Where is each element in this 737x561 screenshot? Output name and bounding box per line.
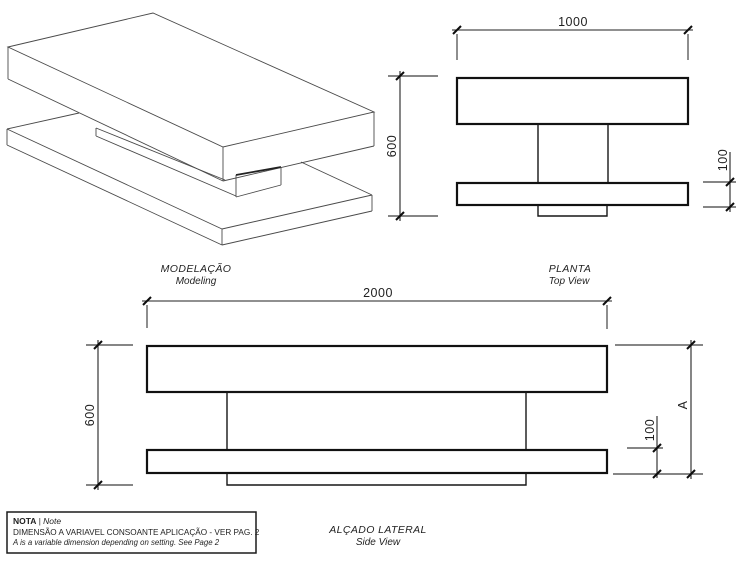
dimension-value-A: A — [676, 400, 690, 409]
top-view-top-slab — [457, 78, 688, 124]
dimension-value-600: 600 — [83, 404, 97, 426]
side-view-tab — [227, 473, 526, 485]
note-heading: NOTA | Note — [13, 516, 61, 526]
top-view-connector — [538, 124, 608, 183]
top-view-title-pt: PLANTA — [549, 263, 591, 275]
iso-top-slab-edge — [8, 79, 223, 181]
iso-connector-edge — [236, 185, 281, 197]
modeling-title-en: Modeling — [176, 276, 217, 287]
note-text-en: A is a variable dimension depending on s… — [12, 538, 220, 547]
side-view-connector — [227, 392, 526, 450]
dimension-value-1000: 1000 — [558, 15, 588, 29]
iso-bottom-slab-edge — [301, 162, 372, 195]
side-view-bottom-slab — [147, 450, 607, 473]
dimension-600-top-view: 600 — [385, 71, 438, 221]
side-view: 2000 600 A 100 ALÇADO — [83, 286, 703, 548]
top-view: 1000 600 100 PLANTA Top View — [385, 15, 736, 287]
dimension-600-side-view: 600 — [83, 340, 133, 490]
iso-top-slab-edge — [223, 146, 374, 181]
modeling-title-pt: MODELAÇÃO — [161, 262, 232, 275]
dimension-value-2000: 2000 — [363, 286, 393, 300]
dimension-1000: 1000 — [452, 15, 693, 60]
side-view-title-pt: ALÇADO LATERAL — [328, 524, 427, 536]
dimension-100-top-view: 100 — [703, 149, 736, 212]
iso-top-slab-top-face — [8, 13, 374, 147]
dimension-2000: 2000 — [142, 286, 612, 329]
dimension-value-100: 100 — [643, 419, 657, 441]
side-view-top-slab — [147, 346, 607, 392]
top-view-bottom-slab — [457, 183, 688, 205]
iso-bottom-slab-edge — [7, 113, 79, 129]
dimension-100-side-view: 100 — [627, 416, 663, 478]
dimension-value-100: 100 — [716, 149, 730, 171]
iso-connector-edge — [96, 128, 225, 180]
isometric-view: MODELAÇÃO Modeling — [7, 13, 374, 287]
iso-bottom-slab-edge — [222, 211, 372, 245]
iso-connector-top-edge — [236, 167, 281, 175]
technical-drawing-sheet: MODELAÇÃO Modeling 1000 600 — [0, 0, 737, 561]
note-label-en: Note — [43, 516, 61, 526]
iso-bottom-slab-edge — [222, 195, 372, 229]
dimension-value-600: 600 — [385, 135, 399, 157]
top-view-title-en: Top View — [549, 276, 590, 287]
note-text-pt: DIMENSÃO A VARIAVEL CONSOANTE APLICAÇÃO … — [13, 527, 260, 537]
drawing-svg: MODELAÇÃO Modeling 1000 600 — [0, 0, 737, 561]
iso-connector-edge — [96, 136, 236, 196]
dimension-A: A — [613, 340, 703, 479]
side-view-title-en: Side View — [356, 537, 401, 548]
top-view-tab — [538, 205, 607, 216]
note-box: NOTA | Note DIMENSÃO A VARIAVEL CONSOANT… — [7, 512, 260, 553]
note-label-pt: NOTA — [13, 516, 36, 526]
note-separator: | — [36, 517, 43, 526]
iso-bottom-slab-edge — [7, 145, 222, 245]
